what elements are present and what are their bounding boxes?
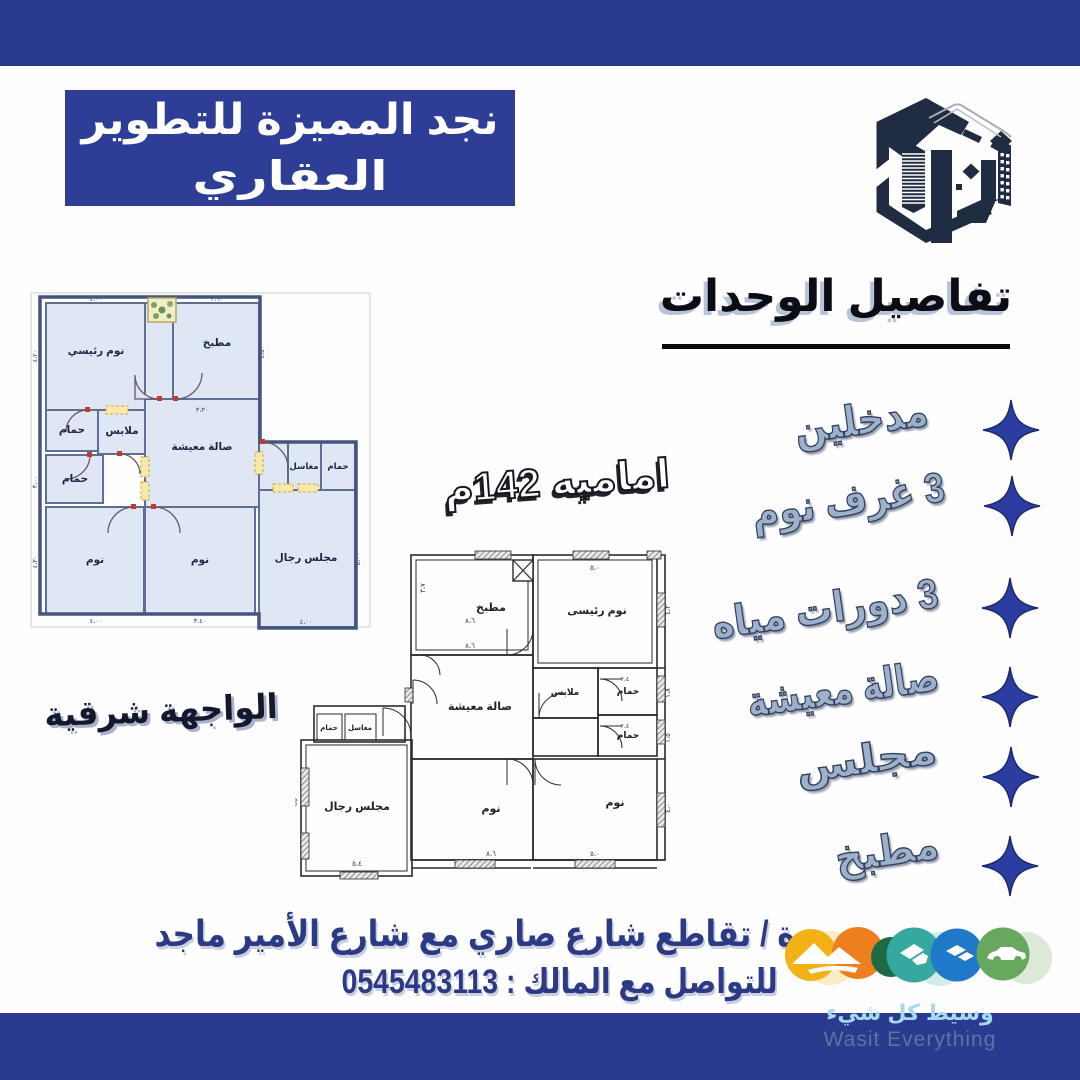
svg-text:مغاسل: مغاسل <box>289 461 318 471</box>
svg-text:٥،٤: ٥،٤ <box>352 861 362 868</box>
svg-text:٣،٠٠: ٣،٠٠ <box>32 476 39 489</box>
svg-text:نوم: نوم <box>191 554 209 566</box>
svg-text:٨،٦: ٨،٦ <box>465 643 475 650</box>
svg-text:٤،٥٠: ٤،٥٠ <box>259 346 266 359</box>
svg-text:٤،٢: ٤،٢ <box>665 605 672 615</box>
svg-text:٥،٠: ٥،٠ <box>590 851 600 858</box>
svg-text:١،٨: ١،٨ <box>665 688 672 698</box>
svg-text:٢،٤: ٢،٤ <box>621 723 629 730</box>
svg-text:نوم رئيسى: نوم رئيسى <box>567 605 626 617</box>
svg-text:ملابس: ملابس <box>105 425 138 437</box>
svg-text:صالة معيشة: صالة معيشة <box>448 701 512 713</box>
svg-text:حمام: حمام <box>59 424 85 436</box>
svg-text:مطبخ: مطبخ <box>476 602 506 614</box>
svg-text:حمام: حمام <box>617 686 640 697</box>
svg-text:٣،٣٠: ٣،٣٠ <box>196 407 209 414</box>
svg-text:مغاسل: مغاسل <box>348 725 372 732</box>
svg-text:حمام: حمام <box>617 730 640 741</box>
svg-text:٢،٤: ٢،٤ <box>621 676 629 683</box>
svg-text:٤،٢٠: ٤،٢٠ <box>32 350 39 363</box>
svg-text:مجلس رجال: مجلس رجال <box>324 801 390 813</box>
svg-text:٨،٦: ٨،٦ <box>486 851 496 858</box>
svg-text:٤،٠: ٤،٠ <box>665 803 672 813</box>
svg-text:٣،٤٠: ٣،٤٠ <box>194 618 207 625</box>
svg-text:٥،٠: ٥،٠ <box>590 565 600 572</box>
svg-text:٦،٥: ٦،٥ <box>295 798 299 808</box>
svg-text:مطبخ: مطبخ <box>203 337 232 349</box>
svg-text:صالة معيشة: صالة معيشة <box>171 441 232 453</box>
svg-text:١،٥: ١،٥ <box>665 733 672 743</box>
svg-text:نوم: نوم <box>86 554 104 566</box>
svg-text:٤،٠٠: ٤،٠٠ <box>90 618 103 625</box>
svg-text:نوم رئيسي: نوم رئيسي <box>68 345 125 357</box>
svg-text:نوم: نوم <box>605 797 624 809</box>
svg-text:حمام: حمام <box>62 473 88 485</box>
svg-text:نوم: نوم <box>481 803 500 815</box>
svg-text:٣،٧: ٣،٧ <box>420 583 427 593</box>
svg-text:٣،٦٠: ٣،٦٠ <box>211 296 224 303</box>
svg-text:٤،٠٠: ٤،٠٠ <box>90 296 103 303</box>
svg-text:حمام: حمام <box>327 461 348 472</box>
svg-text:٤،٣٠: ٤،٣٠ <box>32 556 39 569</box>
svg-text:٨،٦: ٨،٦ <box>465 618 475 625</box>
svg-text:حمام: حمام <box>320 725 338 732</box>
svg-text:ملابس: ملابس <box>551 687 580 698</box>
